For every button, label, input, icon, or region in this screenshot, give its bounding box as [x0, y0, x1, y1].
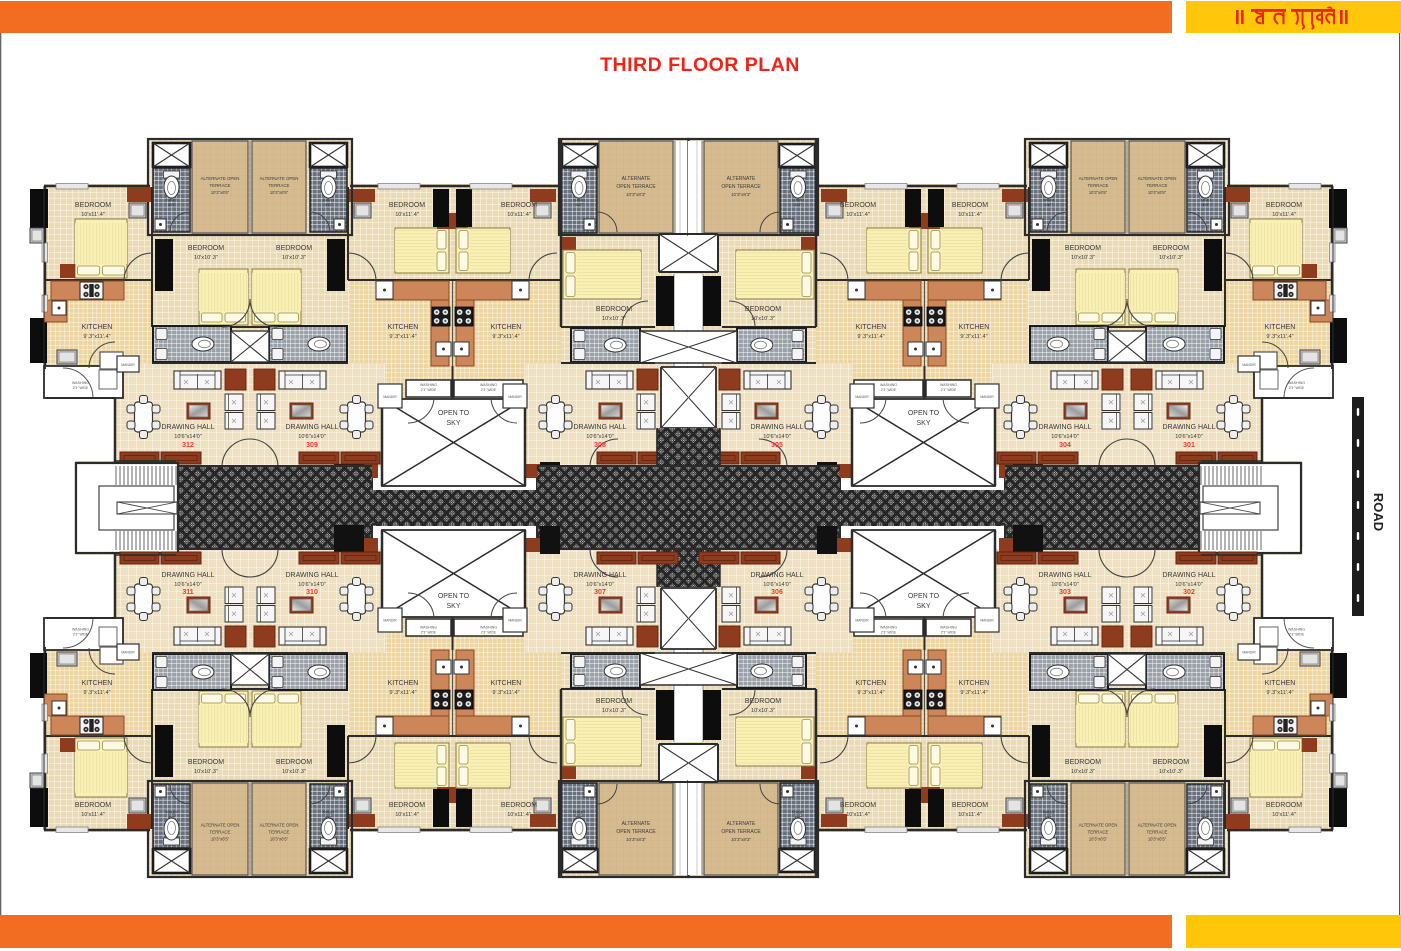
svg-text:MANDIR: MANDIR [980, 618, 994, 622]
svg-text:TOILET: TOILET [1042, 811, 1055, 815]
svg-text:MANDIR: MANDIR [980, 395, 994, 399]
svg-text:BEDROOM: BEDROOM [952, 202, 988, 209]
svg-text:KITCHEN: KITCHEN [1265, 324, 1296, 331]
svg-text:TOILET: TOILET [573, 811, 586, 815]
svg-text:OPEN TO: OPEN TO [908, 410, 940, 417]
svg-text:10'x10'.3": 10'x10'.3" [602, 316, 626, 322]
svg-text:SKY: SKY [446, 420, 460, 427]
svg-text:BEDROOM: BEDROOM [1266, 202, 1302, 209]
svg-text:4'x7': 4'x7' [795, 203, 802, 207]
svg-text:DRAWING HALL: DRAWING HALL [285, 572, 338, 579]
svg-text:2'3" WIDE: 2'3" WIDE [481, 631, 497, 635]
svg-text:10'3"x6'5": 10'3"x6'5" [270, 190, 289, 195]
svg-text:10'6"x14'0": 10'6"x14'0" [1051, 582, 1079, 588]
svg-text:10'3"x8'3": 10'3"x8'3" [731, 192, 751, 197]
svg-text:BEDROOM: BEDROOM [501, 202, 537, 209]
svg-text:DRAWING HALL: DRAWING HALL [1162, 572, 1215, 579]
svg-text:TOILET: TOILET [1199, 198, 1212, 202]
svg-text:10'x11'.4": 10'x11'.4" [1272, 212, 1296, 218]
svg-text:WASHING: WASHING [880, 626, 897, 630]
svg-text:KITCHEN: KITCHEN [82, 324, 113, 331]
svg-text:9'.3"x11'.4": 9'.3"x11'.4" [389, 334, 416, 340]
svg-text:10'6"x14'0": 10'6"x14'0" [763, 582, 791, 588]
svg-text:DRAWING HALL: DRAWING HALL [1162, 424, 1215, 431]
svg-text:BEDROOM: BEDROOM [952, 802, 988, 809]
svg-text:WASHING: WASHING [940, 626, 957, 630]
svg-text:KITCHEN: KITCHEN [491, 324, 522, 331]
svg-text:10'x10'.3": 10'x10'.3" [194, 769, 218, 775]
svg-text:TERRACE: TERRACE [269, 183, 290, 188]
svg-text:10'x10'.3": 10'x10'.3" [194, 255, 218, 261]
svg-text:ROAD: ROAD [1371, 493, 1386, 531]
svg-text:DRAWING HALL: DRAWING HALL [161, 572, 214, 579]
svg-text:WASHING: WASHING [72, 381, 89, 385]
svg-text:TERRACE: TERRACE [1088, 829, 1109, 834]
svg-text:WASHING: WASHING [480, 383, 497, 387]
svg-text:311: 311 [182, 589, 193, 596]
svg-text:301: 301 [1183, 442, 1195, 449]
svg-text:SKY: SKY [446, 603, 460, 610]
svg-text:10'x11'.4": 10'x11'.4" [958, 212, 982, 218]
svg-text:4'x7': 4'x7' [576, 203, 583, 207]
svg-text:MANDIR: MANDIR [121, 363, 135, 367]
svg-text:10'x10'.3": 10'x10'.3" [1071, 769, 1095, 775]
svg-text:TOILET: TOILET [1199, 811, 1212, 815]
svg-text:10'6"x14'0": 10'6"x14'0" [298, 434, 326, 440]
svg-text:4'x7': 4'x7' [168, 203, 175, 207]
svg-text:ALTERNATE: ALTERNATE [622, 821, 651, 827]
svg-text:BEDROOM: BEDROOM [1153, 245, 1189, 252]
svg-text:9'.3"x11'.4": 9'.3"x11'.4" [83, 690, 110, 696]
svg-text:TOILET: TOILET [573, 198, 586, 202]
svg-text:303: 303 [1059, 589, 1071, 596]
svg-text:10'x11'.4": 10'x11'.4" [81, 812, 105, 818]
svg-text:10'x10'.3": 10'x10'.3" [751, 316, 775, 322]
svg-text:DRAWING HALL: DRAWING HALL [161, 424, 214, 431]
svg-text:9'.3"x11'.4": 9'.3"x11'.4" [389, 690, 416, 696]
svg-text:WASHING: WASHING [940, 383, 957, 387]
svg-text:10'6"x14'0": 10'6"x14'0" [1175, 582, 1203, 588]
svg-text:10'6"x14'0": 10'6"x14'0" [586, 434, 614, 440]
svg-text:BEDROOM: BEDROOM [188, 245, 224, 252]
svg-text:MANDIR: MANDIR [855, 618, 869, 622]
svg-text:SKY: SKY [916, 420, 930, 427]
svg-text:9'.3"x11'.4": 9'.3"x11'.4" [857, 690, 884, 696]
svg-text:2'3" WIDE: 2'3" WIDE [941, 631, 957, 635]
svg-text:TERRACE: TERRACE [210, 829, 231, 834]
svg-text:WASHING: WASHING [420, 626, 437, 630]
svg-text:10'x11'.4": 10'x11'.4" [507, 812, 531, 818]
svg-text:TOILET: TOILET [322, 198, 335, 202]
svg-text:302: 302 [1183, 589, 1195, 596]
svg-text:10'x11'.4": 10'x11'.4" [1272, 812, 1296, 818]
svg-text:WASHING: WASHING [1288, 381, 1305, 385]
svg-text:2'3" WIDE: 2'3" WIDE [421, 631, 437, 635]
svg-text:304: 304 [1059, 442, 1071, 449]
svg-text:2'3" WIDE: 2'3" WIDE [941, 388, 957, 392]
svg-text:TERRACE: TERRACE [1147, 829, 1168, 834]
svg-text:9'.3"x11'.4": 9'.3"x11'.4" [83, 334, 110, 340]
svg-text:10'3"x6'5": 10'3"x6'5" [1148, 836, 1167, 841]
svg-text:TOILET: TOILET [322, 811, 335, 815]
svg-text:2'3" WIDE: 2'3" WIDE [1289, 633, 1305, 637]
svg-text:ALTERNATE OPEN: ALTERNATE OPEN [1138, 176, 1177, 181]
svg-text:BEDROOM: BEDROOM [596, 698, 632, 705]
svg-text:9'.3"x11'.4": 9'.3"x11'.4" [1266, 690, 1293, 696]
svg-text:BEDROOM: BEDROOM [75, 202, 111, 209]
svg-text:9'.3"x11'.4": 9'.3"x11'.4" [492, 334, 519, 340]
svg-text:305: 305 [771, 442, 783, 449]
svg-text:ALTERNATE OPEN: ALTERNATE OPEN [260, 822, 299, 827]
svg-text:312: 312 [182, 442, 194, 449]
svg-text:10'x10'.3": 10'x10'.3" [1071, 255, 1095, 261]
svg-text:DRAWING HALL: DRAWING HALL [750, 572, 803, 579]
svg-text:KITCHEN: KITCHEN [1265, 680, 1296, 687]
svg-text:10'6"x14'0": 10'6"x14'0" [1051, 434, 1079, 440]
svg-text:ALTERNATE: ALTERNATE [622, 176, 651, 182]
svg-text:10'x10'.3": 10'x10'.3" [1159, 255, 1183, 261]
svg-text:MANDIR: MANDIR [383, 618, 397, 622]
svg-text:2'3" WIDE: 2'3" WIDE [881, 388, 897, 392]
svg-text:10'6"x14'0": 10'6"x14'0" [763, 434, 791, 440]
svg-text:KITCHEN: KITCHEN [491, 680, 522, 687]
svg-text:10'6"x14'0": 10'6"x14'0" [1175, 434, 1203, 440]
svg-text:4'x7': 4'x7' [1202, 203, 1209, 207]
svg-text:DRAWING HALL: DRAWING HALL [573, 572, 626, 579]
svg-text:ALTERNATE OPEN: ALTERNATE OPEN [1079, 176, 1118, 181]
svg-text:10'x10'.3": 10'x10'.3" [602, 708, 626, 714]
svg-text:KITCHEN: KITCHEN [959, 324, 990, 331]
svg-text:10'x11'.4": 10'x11'.4" [958, 812, 982, 818]
svg-text:BEDROOM: BEDROOM [745, 306, 781, 313]
svg-text:10'x11'.4": 10'x11'.4" [395, 812, 419, 818]
svg-text:10'x11'.4": 10'x11'.4" [81, 212, 105, 218]
svg-text:2'3" WIDE: 2'3" WIDE [73, 633, 89, 637]
svg-text:BEDROOM: BEDROOM [389, 202, 425, 209]
svg-text:BEDROOM: BEDROOM [1266, 802, 1302, 809]
svg-text:10'3"x6'5": 10'3"x6'5" [1148, 190, 1167, 195]
svg-text:2'3" WIDE: 2'3" WIDE [1289, 386, 1305, 390]
svg-text:10'x11'.4": 10'x11'.4" [395, 212, 419, 218]
svg-text:OPEN TERRACE: OPEN TERRACE [721, 829, 761, 835]
svg-text:TERRACE: TERRACE [1147, 183, 1168, 188]
svg-text:10'x10'.3": 10'x10'.3" [282, 255, 306, 261]
svg-text:WASHING: WASHING [420, 383, 437, 387]
svg-text:OPEN TERRACE: OPEN TERRACE [616, 184, 656, 190]
svg-text:2'3" WIDE: 2'3" WIDE [881, 631, 897, 635]
svg-text:4'x7': 4'x7' [168, 816, 175, 820]
svg-text:BEDROOM: BEDROOM [1065, 245, 1101, 252]
svg-text:10'x10'.3": 10'x10'.3" [1159, 769, 1183, 775]
svg-text:TERRACE: TERRACE [1088, 183, 1109, 188]
svg-text:ALTERNATE OPEN: ALTERNATE OPEN [260, 176, 299, 181]
svg-text:DRAWING HALL: DRAWING HALL [285, 424, 338, 431]
svg-text:DRAWING HALL: DRAWING HALL [1038, 424, 1091, 431]
svg-text:BEDROOM: BEDROOM [75, 802, 111, 809]
svg-text:ALTERNATE OPEN: ALTERNATE OPEN [1079, 822, 1118, 827]
svg-text:4'x7': 4'x7' [1045, 203, 1052, 207]
svg-text:WASHING: WASHING [1288, 628, 1305, 632]
svg-text:DRAWING HALL: DRAWING HALL [1038, 572, 1091, 579]
svg-text:10'3"x8'3": 10'3"x8'3" [626, 837, 646, 842]
svg-text:BEDROOM: BEDROOM [188, 759, 224, 766]
svg-text:TOILET: TOILET [165, 811, 178, 815]
svg-text:BEDROOM: BEDROOM [1065, 759, 1101, 766]
svg-text:BEDROOM: BEDROOM [596, 306, 632, 313]
svg-text:10'x10'.3": 10'x10'.3" [282, 769, 306, 775]
svg-text:MANDIR: MANDIR [383, 395, 397, 399]
svg-text:KITCHEN: KITCHEN [856, 680, 887, 687]
svg-text:OPEN TO: OPEN TO [438, 593, 470, 600]
svg-text:4'x7': 4'x7' [795, 816, 802, 820]
svg-text:10'3"x6'5": 10'3"x6'5" [270, 836, 289, 841]
svg-text:10'x11'.4": 10'x11'.4" [846, 212, 870, 218]
svg-text:ALTERNATE OPEN: ALTERNATE OPEN [1138, 822, 1177, 827]
svg-text:OPEN TERRACE: OPEN TERRACE [616, 829, 656, 835]
svg-text:10'3"x8'3": 10'3"x8'3" [731, 837, 751, 842]
svg-text:4'x7': 4'x7' [1202, 816, 1209, 820]
svg-text:TOILET: TOILET [792, 811, 805, 815]
svg-text:BEDROOM: BEDROOM [501, 802, 537, 809]
svg-text:TOILET: TOILET [1042, 198, 1055, 202]
svg-text:KITCHEN: KITCHEN [82, 680, 113, 687]
svg-text:4'x7': 4'x7' [325, 816, 332, 820]
svg-text:BEDROOM: BEDROOM [840, 202, 876, 209]
svg-text:10'6"x14'0": 10'6"x14'0" [174, 582, 202, 588]
svg-text:MANDIR: MANDIR [121, 650, 135, 654]
svg-text:4'x7': 4'x7' [325, 203, 332, 207]
svg-text:MANDIR: MANDIR [1242, 363, 1256, 367]
svg-text:309: 309 [306, 442, 318, 449]
svg-text:OPEN TO: OPEN TO [438, 410, 470, 417]
svg-text:10'3"x8'3": 10'3"x8'3" [626, 192, 646, 197]
svg-text:9'.3"x11'.4": 9'.3"x11'.4" [960, 334, 987, 340]
svg-text:BEDROOM: BEDROOM [276, 759, 312, 766]
svg-text:9'.3"x11'.4": 9'.3"x11'.4" [857, 334, 884, 340]
svg-text:DRAWING HALL: DRAWING HALL [750, 424, 803, 431]
svg-text:THIRD FLOOR PLAN: THIRD FLOOR PLAN [600, 54, 800, 76]
svg-text:KITCHEN: KITCHEN [388, 324, 419, 331]
svg-text:306: 306 [771, 589, 783, 596]
svg-text:OPEN TERRACE: OPEN TERRACE [721, 184, 761, 190]
svg-text:DRAWING HALL: DRAWING HALL [573, 424, 626, 431]
svg-text:9'.3"x11'.4": 9'.3"x11'.4" [1266, 334, 1293, 340]
svg-text:307: 307 [594, 589, 606, 596]
svg-text:308: 308 [594, 442, 606, 449]
svg-text:TOILET: TOILET [165, 198, 178, 202]
svg-text:WASHING: WASHING [72, 628, 89, 632]
svg-text:2'3" WIDE: 2'3" WIDE [481, 388, 497, 392]
svg-text:4'x7': 4'x7' [1045, 816, 1052, 820]
svg-text:10'3"x6'5": 10'3"x6'5" [211, 836, 230, 841]
svg-text:10'6"x14'0": 10'6"x14'0" [586, 582, 614, 588]
svg-text:KITCHEN: KITCHEN [959, 680, 990, 687]
svg-text:10'x11'.4": 10'x11'.4" [846, 812, 870, 818]
svg-text:10'3"x6'5": 10'3"x6'5" [1089, 190, 1108, 195]
svg-text:BEDROOM: BEDROOM [1153, 759, 1189, 766]
svg-text:10'3"x6'5": 10'3"x6'5" [211, 190, 230, 195]
svg-text:9'.3"x11'.4": 9'.3"x11'.4" [960, 690, 987, 696]
svg-text:SKY: SKY [916, 603, 930, 610]
svg-text:MANDIR: MANDIR [508, 618, 522, 622]
svg-text:10'x11'.4": 10'x11'.4" [507, 212, 531, 218]
svg-text:BEDROOM: BEDROOM [745, 698, 781, 705]
svg-text:10'x10'.3": 10'x10'.3" [751, 708, 775, 714]
svg-text:ALTERNATE OPEN: ALTERNATE OPEN [201, 176, 240, 181]
svg-text:2'3" WIDE: 2'3" WIDE [73, 386, 89, 390]
svg-text:BEDROOM: BEDROOM [840, 802, 876, 809]
svg-text:10'6"x14'0": 10'6"x14'0" [174, 434, 202, 440]
svg-text:10'3"x6'5": 10'3"x6'5" [1089, 836, 1108, 841]
svg-text:KITCHEN: KITCHEN [856, 324, 887, 331]
svg-text:TERRACE: TERRACE [210, 183, 231, 188]
svg-text:ALTERNATE: ALTERNATE [727, 176, 756, 182]
svg-text:BEDROOM: BEDROOM [389, 802, 425, 809]
svg-text:TOILET: TOILET [792, 198, 805, 202]
svg-text:4'x7': 4'x7' [576, 816, 583, 820]
svg-text:ALTERNATE: ALTERNATE [727, 821, 756, 827]
svg-text:ALTERNATE OPEN: ALTERNATE OPEN [201, 822, 240, 827]
svg-text:WASHING: WASHING [480, 626, 497, 630]
svg-text:MANDIR: MANDIR [1242, 650, 1256, 654]
svg-text:10'6"x14'0": 10'6"x14'0" [298, 582, 326, 588]
svg-text:WASHING: WASHING [880, 383, 897, 387]
svg-text:9'.3"x11'.4": 9'.3"x11'.4" [492, 690, 519, 696]
svg-text:MANDIR: MANDIR [508, 395, 522, 399]
svg-text:BEDROOM: BEDROOM [276, 245, 312, 252]
svg-text:MANDIR: MANDIR [855, 395, 869, 399]
svg-text:310: 310 [306, 589, 318, 596]
svg-text:TERRACE: TERRACE [269, 829, 290, 834]
svg-text:KITCHEN: KITCHEN [388, 680, 419, 687]
svg-text:OPEN TO: OPEN TO [908, 593, 940, 600]
svg-text:2'3" WIDE: 2'3" WIDE [421, 388, 437, 392]
